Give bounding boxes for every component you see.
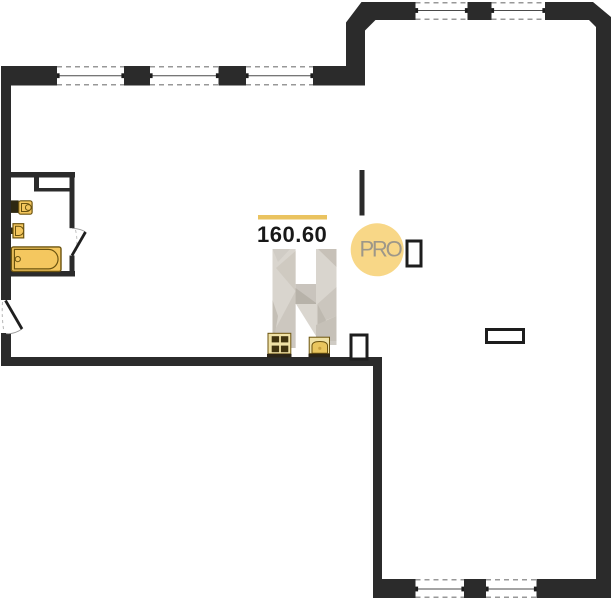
svg-text:PRO: PRO [359,237,402,262]
